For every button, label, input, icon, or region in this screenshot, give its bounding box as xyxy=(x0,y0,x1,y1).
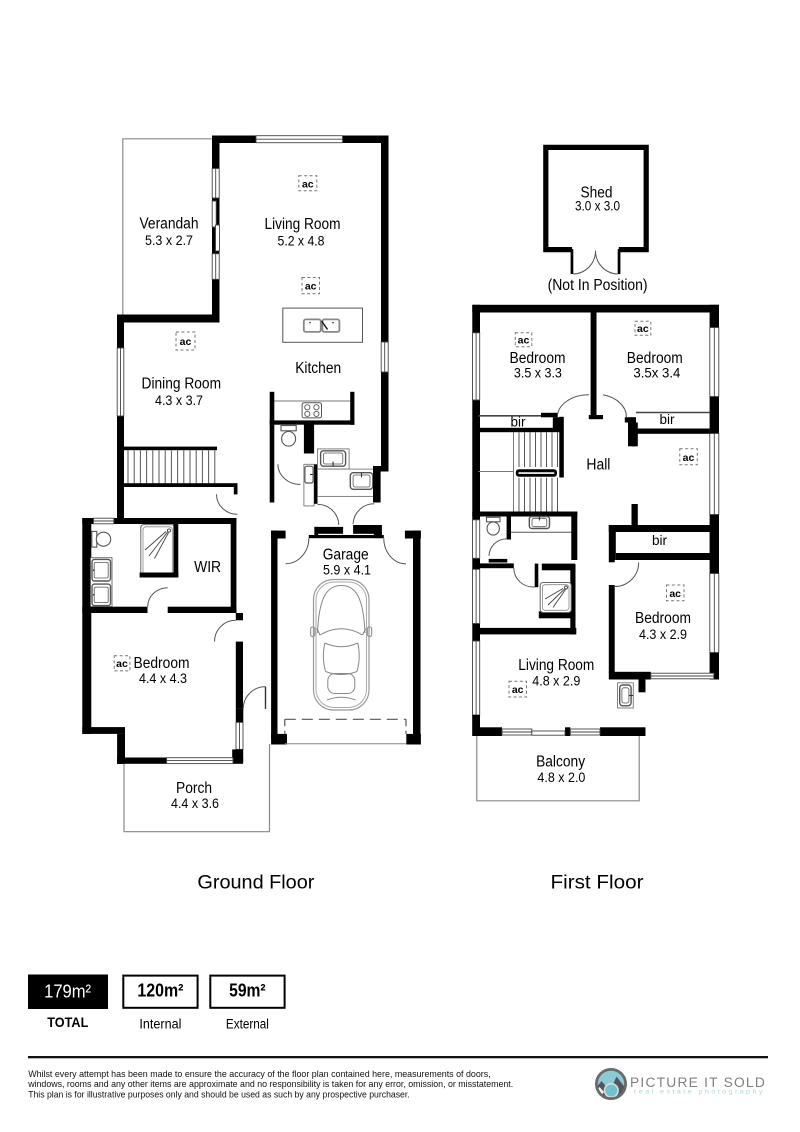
svg-text:Kitchen: Kitchen xyxy=(295,360,341,377)
svg-text:4.8 x 2.0: 4.8 x 2.0 xyxy=(537,769,585,785)
svg-text:Verandah: Verandah xyxy=(140,216,199,233)
svg-text:Dining Room: Dining Room xyxy=(142,376,222,393)
svg-text:4.8 x 2.9: 4.8 x 2.9 xyxy=(532,673,580,689)
svg-text:ac: ac xyxy=(512,684,524,696)
svg-text:PICTURE IT SOLD: PICTURE IT SOLD xyxy=(630,1075,766,1090)
svg-text:Ground Floor: Ground Floor xyxy=(197,872,315,894)
svg-text:Hall: Hall xyxy=(586,457,610,474)
svg-text:Whilst every attempt has been: Whilst every attempt has been made to en… xyxy=(28,1069,491,1079)
svg-text:WIR: WIR xyxy=(194,559,221,576)
svg-text:ac: ac xyxy=(518,335,530,347)
svg-text:3.5x 3.4: 3.5x 3.4 xyxy=(633,365,680,381)
svg-text:TOTAL: TOTAL xyxy=(47,1015,88,1030)
svg-text:ac: ac xyxy=(180,336,192,348)
svg-text:5.3 x 2.7: 5.3 x 2.7 xyxy=(145,232,193,248)
svg-text:Balcony: Balcony xyxy=(536,754,585,771)
svg-text:Living Room: Living Room xyxy=(518,657,594,674)
svg-text:bir: bir xyxy=(659,412,675,427)
svg-text:This plan is for illustrative: This plan is for illustrative purposes o… xyxy=(28,1089,410,1099)
svg-text:Bedroom: Bedroom xyxy=(635,610,691,627)
svg-text:5.9 x 4.1: 5.9 x 4.1 xyxy=(323,562,371,578)
svg-text:bir: bir xyxy=(510,415,526,430)
svg-text:4.3 x 3.7: 4.3 x 3.7 xyxy=(155,392,203,408)
svg-text:Living Room: Living Room xyxy=(265,216,341,233)
svg-text:ac: ac xyxy=(305,281,317,293)
svg-text:windows, rooms and any other i: windows, rooms and any other items are a… xyxy=(27,1079,513,1089)
svg-text:59m²: 59m² xyxy=(229,981,266,1001)
svg-text:ac: ac xyxy=(683,452,695,464)
svg-text:(Not In Position): (Not In Position) xyxy=(548,277,648,294)
svg-text:120m²: 120m² xyxy=(137,981,183,1001)
svg-text:3.0 x 3.0: 3.0 x 3.0 xyxy=(575,198,620,214)
svg-text:Internal: Internal xyxy=(139,1017,181,1032)
svg-text:179m²: 179m² xyxy=(44,981,91,1002)
svg-text:ac: ac xyxy=(669,588,681,600)
svg-text:ac: ac xyxy=(637,323,649,335)
svg-text:ac: ac xyxy=(116,658,128,670)
svg-text:ac: ac xyxy=(302,179,314,191)
svg-text:4.3 x 2.9: 4.3 x 2.9 xyxy=(639,626,687,642)
svg-text:real estate photography: real estate photography xyxy=(634,1089,765,1096)
svg-text:bir: bir xyxy=(652,533,668,548)
svg-text:4.4 x 3.6: 4.4 x 3.6 xyxy=(171,795,219,811)
svg-text:4.4 x 4.3: 4.4 x 4.3 xyxy=(139,670,187,686)
svg-text:First Floor: First Floor xyxy=(551,872,645,894)
svg-text:External: External xyxy=(226,1017,269,1032)
svg-text:3.5 x 3.3: 3.5 x 3.3 xyxy=(514,365,562,381)
svg-text:5.2 x 4.8: 5.2 x 4.8 xyxy=(278,233,325,249)
